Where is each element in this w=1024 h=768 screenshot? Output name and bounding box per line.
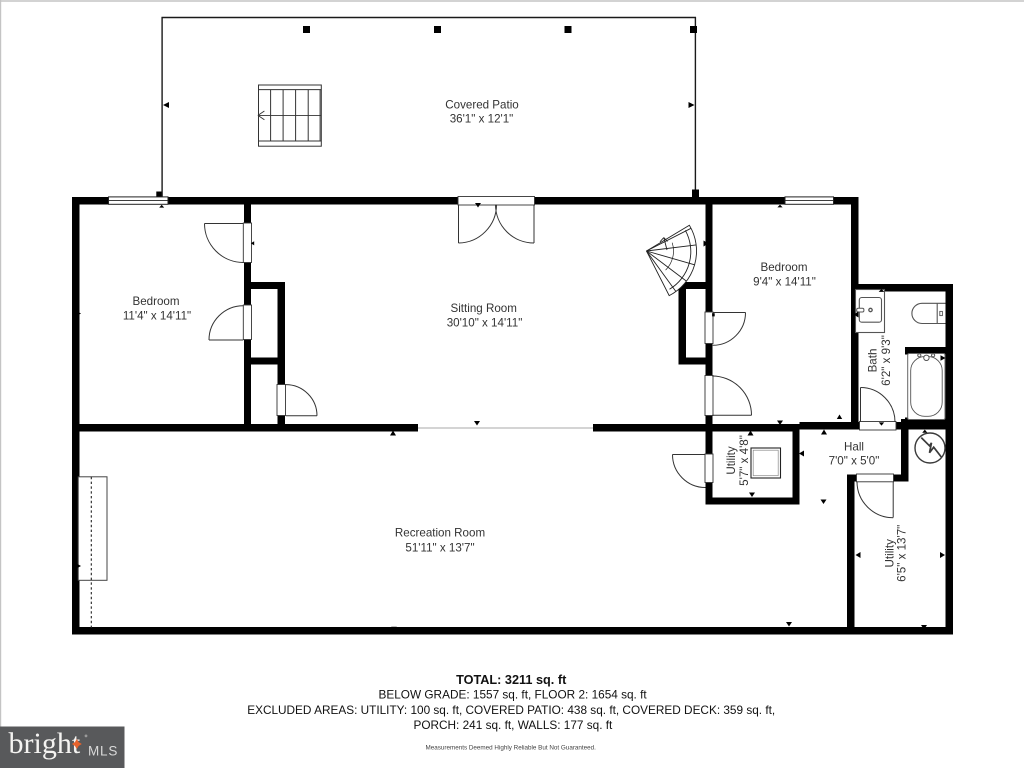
svg-text:Bedroom: Bedroom (760, 261, 807, 274)
svg-text:Covered Patio: Covered Patio (445, 99, 518, 112)
svg-text:Measurements Deemed Highly Rel: Measurements Deemed Highly Reliable But … (425, 745, 596, 752)
svg-text:36'1" x 12'1": 36'1" x 12'1" (450, 113, 514, 126)
svg-text:Sitting Room: Sitting Room (451, 302, 517, 315)
svg-text:EXCLUDED AREAS: UTILITY: 100 s: EXCLUDED AREAS: UTILITY: 100 sq. ft, COV… (247, 703, 775, 717)
svg-text:6'2" x 9'3": 6'2" x 9'3" (880, 335, 893, 386)
svg-text:Utility: Utility (725, 446, 738, 475)
svg-text:Hall: Hall (844, 441, 864, 454)
svg-text:51'11" x 13'7": 51'11" x 13'7" (405, 542, 474, 555)
svg-text:30'10" x 14'11": 30'10" x 14'11" (447, 317, 523, 330)
svg-text:Bath: Bath (867, 349, 880, 373)
svg-text:Bedroom: Bedroom (132, 295, 179, 308)
svg-text:11'4" x 14'11": 11'4" x 14'11" (123, 310, 191, 323)
svg-text:MLS: MLS (88, 743, 118, 758)
svg-text:bright: bright (9, 727, 81, 760)
svg-text:Recreation Room: Recreation Room (395, 527, 485, 540)
svg-text:9'4" x 14'11": 9'4" x 14'11" (753, 276, 816, 289)
svg-text:BELOW GRADE: 1557 sq. ft, FLOO: BELOW GRADE: 1557 sq. ft, FLOOR 2: 1654 … (379, 688, 648, 702)
svg-text:PORCH: 241 sq. ft, WALLS: 177: PORCH: 241 sq. ft, WALLS: 177 sq. ft (413, 718, 613, 732)
svg-text:7'0" x 5'0": 7'0" x 5'0" (829, 455, 880, 468)
svg-text:5'7" x 4'8": 5'7" x 4'8" (738, 435, 751, 486)
svg-text:TOTAL: 3211 sq. ft: TOTAL: 3211 sq. ft (456, 673, 567, 687)
svg-text:6'5" x 13'7": 6'5" x 13'7" (895, 525, 908, 582)
